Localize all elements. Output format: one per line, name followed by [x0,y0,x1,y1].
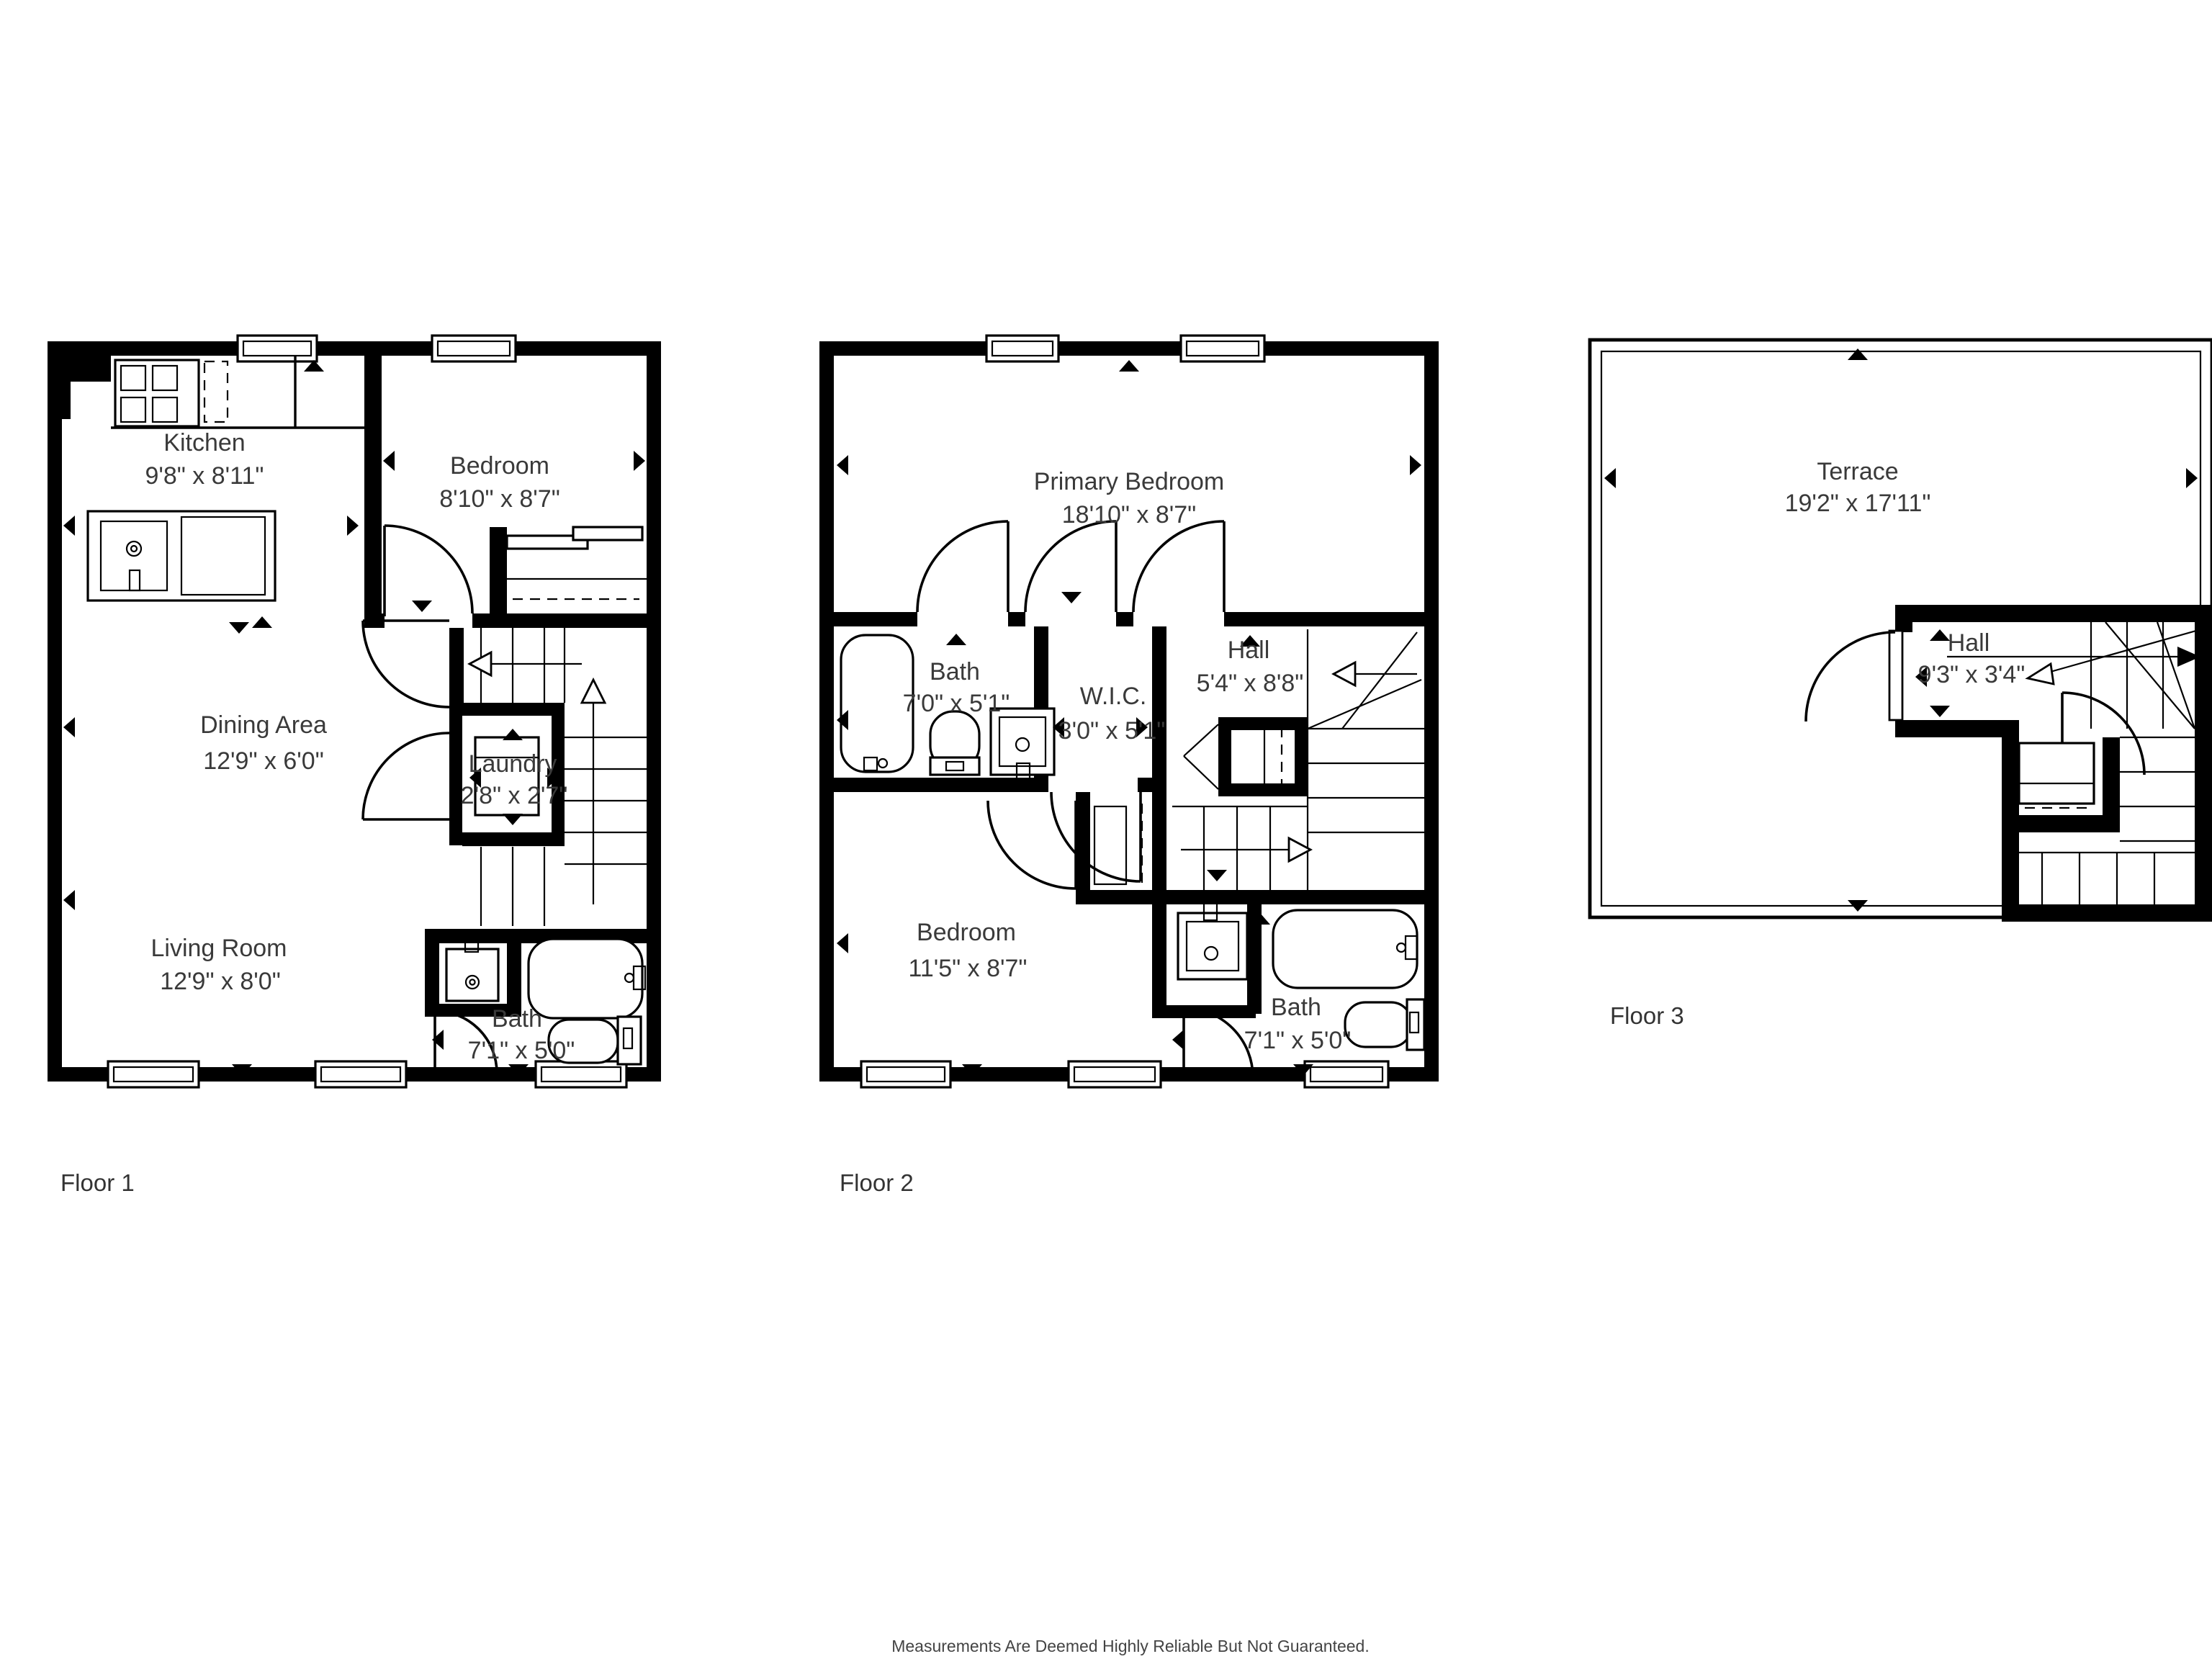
room-label-bath3-dims: 7'1" x 5'0" [1244,1027,1352,1054]
disclaimer-text: Measurements Are Deemed Highly Reliable … [891,1637,1370,1655]
stair-arrow-down-icon [2028,664,2054,684]
room-label-hall2-dims: 5'4" x 8'8" [1197,670,1304,697]
room-label-hall3-name: Hall [1948,629,1990,657]
room-label-wic-name: W.I.C. [1080,683,1147,710]
room-label-bath2-dims: 7'0" x 5'1" [903,690,1010,717]
room-label-hall2-name: Hall [1228,637,1270,664]
dishwasher-icon [204,361,228,422]
stove-icon [115,360,199,426]
stair-arrow-up-icon [582,680,605,703]
room-label-living-dims: 12'9" x 8'0" [160,968,281,995]
floor-1-closet [507,527,647,599]
room-label-living-name: Living Room [151,935,287,962]
room-label-bath2-name: Bath [930,658,980,685]
room-label-primary-name: Primary Bedroom [1034,468,1225,495]
floor-3-label: Floor 3 [1610,1002,1684,1029]
room-label-primary-dims: 18'10" x 8'7" [1062,501,1196,529]
room-label-terrace-dims: 19'2" x 17'11" [1785,490,1931,517]
bath-sink-icon [991,709,1054,775]
room-label-dining-dims: 12'9" x 6'0" [203,747,324,775]
room-label-dining-name: Dining Area [200,711,327,739]
floor-1-label: Floor 1 [60,1169,135,1196]
room-label-bath3-name: Bath [1271,994,1321,1021]
room-label-terrace-name: Terrace [1817,458,1898,485]
floorplan-canvas: Kitchen 9'8" x 8'11" Bedroom 8'10" x 8'7… [0,0,2212,1659]
floor-3-plan: Terrace 19'2" x 17'11" Hall 9'3" x 3'4" … [1590,340,2212,1029]
room-label-bath1-dims: 7'1" x 5'0" [468,1037,575,1064]
room-label-hall3-dims: 9'3" x 3'4" [1918,661,2026,688]
door-leaf [1889,631,1902,720]
room-label-bath1-name: Bath [492,1005,542,1033]
closet-box [2019,743,2094,804]
floor-3-room-labels: Terrace 19'2" x 17'11" Hall 9'3" x 3'4" [1785,458,2026,688]
room-label-bedroom1-name: Bedroom [450,452,549,480]
bath-sink-icon [1178,913,1247,979]
floor-2-label: Floor 2 [840,1169,914,1196]
floor-1-plan: Kitchen 9'8" x 8'11" Bedroom 8'10" x 8'7… [48,336,661,1196]
room-label-bedroom2-dims: 11'5" x 8'7" [908,955,1027,982]
room-label-laundry-name: Laundry [469,750,557,778]
bathtub-icon [1273,910,1417,988]
room-label-laundry-dims: 2'8" x 2'7" [461,782,568,809]
floor-2-plan: Primary Bedroom 18'10" x 8'7" Bath 7'0" … [819,336,1439,1196]
room-label-wic-dims: 3'0" x 5'1" [1058,717,1166,745]
room-label-kitchen-name: Kitchen [163,429,245,457]
stair-arrow-left-icon [1334,662,1355,685]
room-label-kitchen-dims: 9'8" x 8'11" [145,462,264,490]
room-label-bedroom1-dims: 8'10" x 8'7" [439,485,560,513]
room-label-bedroom2-name: Bedroom [917,919,1016,946]
toilet-icon [1345,1002,1411,1047]
